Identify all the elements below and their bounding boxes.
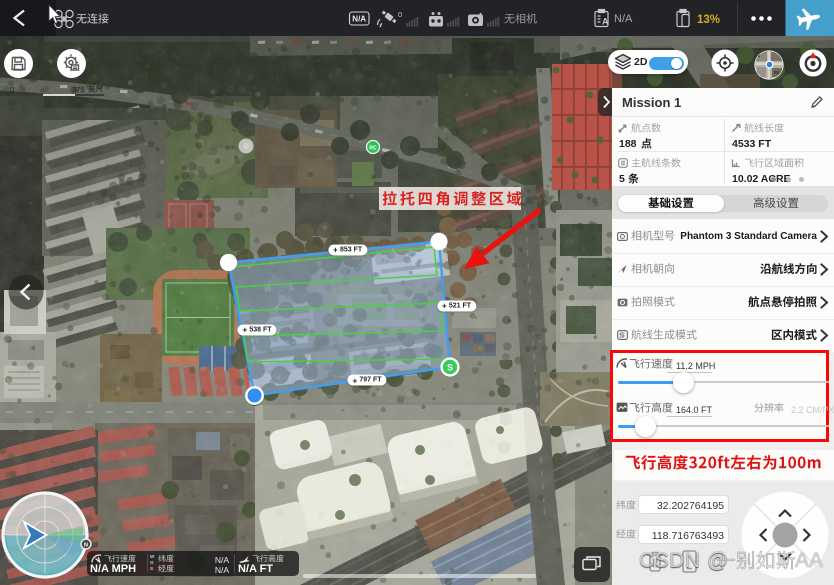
svg-text:RC: RC	[369, 146, 377, 152]
svg-text:S: S	[447, 363, 453, 373]
svg-text:N: N	[84, 543, 88, 549]
svg-text:0: 0	[398, 10, 402, 19]
svg-text:N/A: N/A	[352, 15, 366, 24]
svg-text:A: A	[602, 17, 609, 27]
svg-text:13%: 13%	[697, 14, 720, 26]
